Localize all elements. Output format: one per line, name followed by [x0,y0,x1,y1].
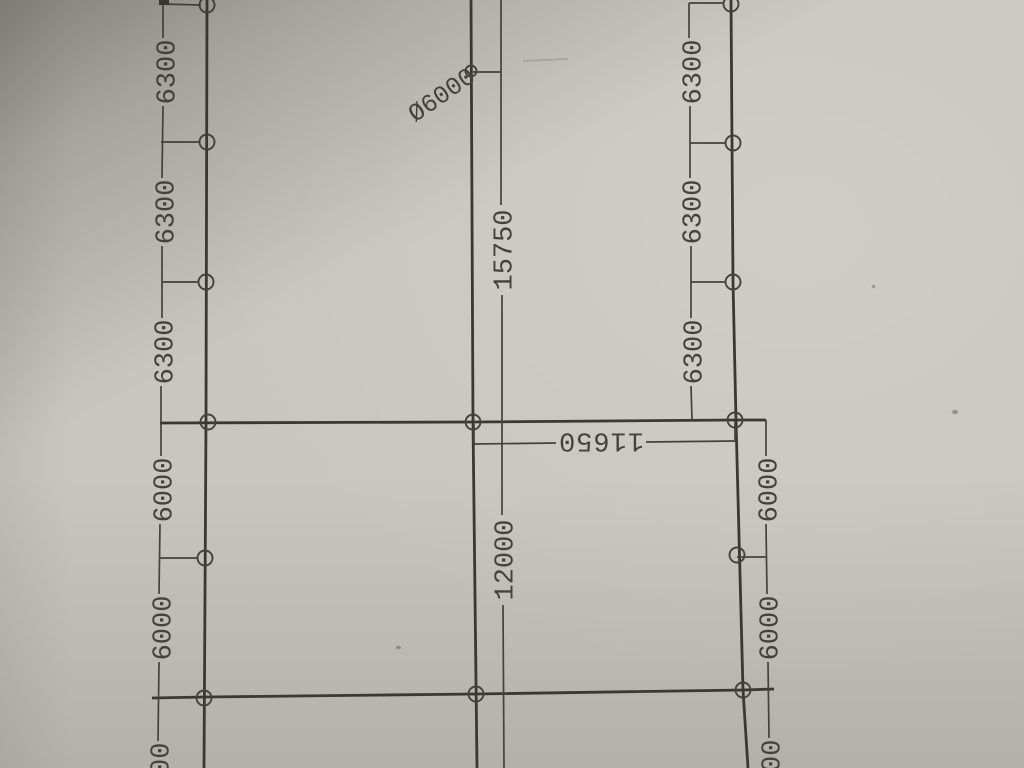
dimension-label-left-6000-3-partial: 6000 [147,743,177,768]
grid-line-right-vertical [731,0,748,768]
dimension-drawing: 6300 6300 6300 6000 6000 6000 15750 1200… [0,0,1024,768]
dimension-label-right-6300-2: 6300 [679,180,709,245]
dimension-lines [158,0,769,768]
dimension-label-right-6300-3: 6300 [680,320,710,385]
blueprint-photo: 6300 6300 6300 6000 6000 6000 15750 1200… [0,0,1024,768]
dim-line-center [503,605,504,768]
grid-line-left-vertical [204,0,207,768]
dim-line-11650 [646,441,735,442]
grid-line-center-vertical [471,0,477,768]
dimension-label-right-6000-1: 6000 [755,458,785,523]
grid-line-bottom-horizontal [152,689,774,698]
dimension-label-left-6300-1: 6300 [153,40,183,105]
dimension-label-left-6300-3: 6300 [151,320,181,385]
dimension-label-left-6300-2: 6300 [152,180,182,245]
dimension-label-right-6000-2: 6000 [756,596,786,661]
dimension-label-right-6300-1: 6300 [679,40,709,105]
dimension-label-11650: 11650 [558,425,644,455]
dim-line-11650 [474,443,556,444]
dimension-label-left-6000-1: 6000 [150,458,180,523]
dim-line-left [159,524,160,594]
dim-line-right-upper [691,386,692,420]
dim-line-left [158,662,159,741]
grid-line-middle-horizontal [160,420,766,423]
paper-smudge [523,59,568,61]
cut-off-mark-top [159,0,169,5]
diameter-note-label: Ø6000 [403,62,481,129]
grid-node [730,548,745,563]
dimension-label-12000: 12000 [491,519,521,600]
dim-line-right-lower [768,662,769,738]
dimension-label-left-6000-2: 6000 [149,596,179,661]
dimension-label-15750: 15750 [490,209,520,290]
dimension-label-right-6000-3-partial: 6000 [758,740,788,768]
dim-line-right-lower [766,524,767,594]
